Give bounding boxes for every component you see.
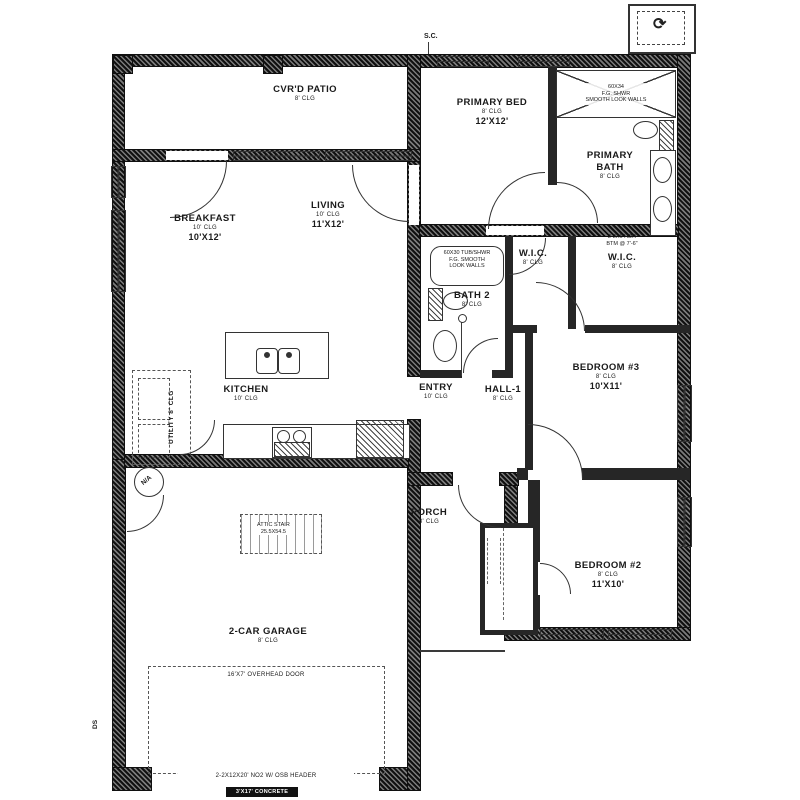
wall-garage-bottom-left xyxy=(113,768,151,790)
door-front-entry xyxy=(458,485,501,528)
osb-header-label: 2-2X12X20' NO2 W/ OSB HEADER xyxy=(178,773,354,779)
primary-shower: 60X34 F.G. SHWR SMOOTH LOOK WALLS xyxy=(556,70,676,118)
label-wic-hall: W.I.C.8' CLG xyxy=(498,248,568,267)
primary-toilet xyxy=(633,121,658,139)
label-bath2: BATH 28' CLG xyxy=(432,290,512,309)
wall-bed3-bottom-a xyxy=(517,468,528,480)
bath2-tub: 60X30 TUB/SHWR F.G. SMOOTH LOOK WALLS xyxy=(430,246,504,286)
flex-symbol-box: ⟳ xyxy=(628,4,696,54)
door-primary-bath xyxy=(557,182,598,223)
window-breakfast-left-2 xyxy=(111,210,126,292)
na-marker-label: N/A xyxy=(140,474,153,487)
bath2-towel-ring xyxy=(458,314,467,323)
kitchen-sink-drain-1 xyxy=(264,352,270,358)
window-bedroom2-right xyxy=(677,497,692,547)
attic-stair-label: ATTIC STAIR 25.5X54.5 xyxy=(255,522,292,535)
ds-marker: DS xyxy=(92,695,99,729)
opening-living-entry xyxy=(409,165,419,225)
closet-shelf-line xyxy=(503,528,504,620)
floor-plan: 60X34 F.G. SHWR SMOOTH LOOK WALLS 60X30 … xyxy=(0,0,800,800)
wall-left-main xyxy=(113,150,124,470)
bath2-towel-bar xyxy=(461,318,462,376)
window-living-patio-2 xyxy=(325,151,412,161)
overhead-door-label: 16'X7' OVERHEAD DOOR xyxy=(190,672,342,678)
patio-post-1 xyxy=(114,56,132,73)
wall-porch-top xyxy=(408,473,452,485)
bath2-tub-label-1: 60X30 TUB/SHWR xyxy=(431,250,503,257)
window-bedroom3-right xyxy=(677,385,692,442)
label-primary-bed: PRIMARY BED8' CLG12'X12' xyxy=(437,97,547,128)
door-bedroom2 xyxy=(528,424,583,479)
primary-sink-2 xyxy=(653,196,672,222)
label-hall1: HALL-18' CLG xyxy=(472,384,534,403)
opening-breakfast-door xyxy=(166,151,228,160)
wall-right-main xyxy=(678,55,690,640)
label-garage: 2-CAR GARAGE8' CLG xyxy=(208,626,328,645)
bath2-tub-label-2: F.G. SMOOTH xyxy=(431,257,503,264)
primary-sink-1 xyxy=(653,157,672,183)
wall-wic-bottom-a xyxy=(505,325,537,333)
hall-attic-access xyxy=(487,538,501,584)
label-wic-primary: W.I.C.8' CLG xyxy=(587,252,657,271)
label-living: LIVING10' CLG11'X12' xyxy=(278,200,378,231)
label-wic-primary-hdr: 2-2X6 HDRBTM @ 7'-6" xyxy=(585,234,659,247)
overhead-door-outline xyxy=(148,666,385,774)
primary-bath-hatch xyxy=(659,120,674,152)
kitchen-sink-drain-2 xyxy=(286,352,292,358)
range-hatch xyxy=(274,442,310,457)
window-breakfast-left-1 xyxy=(111,166,126,198)
attic-stair-box: ATTIC STAIR 25.5X54.5 xyxy=(240,514,322,554)
wall-bed3-bottom-b xyxy=(582,468,690,480)
wall-porch-right xyxy=(505,480,517,528)
wall-bath2-bottom-a xyxy=(420,370,462,378)
window-primary-bed-1 xyxy=(437,56,489,67)
sc-marker: S.C. xyxy=(424,33,438,40)
window-living-patio-1 xyxy=(233,151,320,161)
flex-rotation-icon: ⟳ xyxy=(653,14,666,34)
door-breakfast xyxy=(170,161,227,218)
door-bedroom3 xyxy=(536,282,585,331)
window-primary-bed-2 xyxy=(518,56,570,67)
label-patio: CVR'D PATIO8' CLG xyxy=(245,84,365,103)
door-garage-house xyxy=(127,495,164,532)
utility-washer xyxy=(138,378,170,420)
label-entry: ENTRY10' CLG xyxy=(405,382,467,401)
label-primary-bath: PRIMARY BATH8' CLG xyxy=(575,150,645,181)
window-bedroom2-bottom-2 xyxy=(608,629,672,640)
bath2-tub-label-3: LOOK WALLS xyxy=(431,263,503,270)
door-bath2 xyxy=(463,338,498,373)
patio-post-2 xyxy=(264,56,282,73)
utility-label: UTILITY 8' CLG xyxy=(168,378,175,456)
door-primary-bed xyxy=(488,172,545,229)
label-bedroom2: BEDROOM #28' CLG11'X10' xyxy=(553,560,663,591)
wall-wic-bottom-b xyxy=(585,325,690,333)
porch-step-line xyxy=(420,650,505,652)
label-porch: PORCH8' CLG xyxy=(398,507,460,526)
label-kitchen: KITCHEN10' CLG xyxy=(196,384,296,403)
primary-shower-label: 60X34 F.G. SHWR SMOOTH LOOK WALLS xyxy=(568,83,664,105)
label-breakfast: BREAKFAST10' CLG10'X12' xyxy=(150,213,260,244)
window-bedroom2-bottom-1 xyxy=(540,629,604,640)
wall-porch-top-right xyxy=(500,473,518,485)
na-marker-circle: N/A xyxy=(134,467,164,497)
sc-marker-tick xyxy=(428,42,429,54)
kitchen-dw-hatch xyxy=(356,420,404,458)
utility-dryer xyxy=(138,424,170,458)
label-bedroom3: BEDROOM #38' CLG10'X11' xyxy=(551,362,661,393)
wall-garage-left xyxy=(113,460,125,790)
concrete-apron-label: 3'X17' CONCRETE APRON xyxy=(226,787,298,797)
bath2-sink xyxy=(433,330,457,362)
